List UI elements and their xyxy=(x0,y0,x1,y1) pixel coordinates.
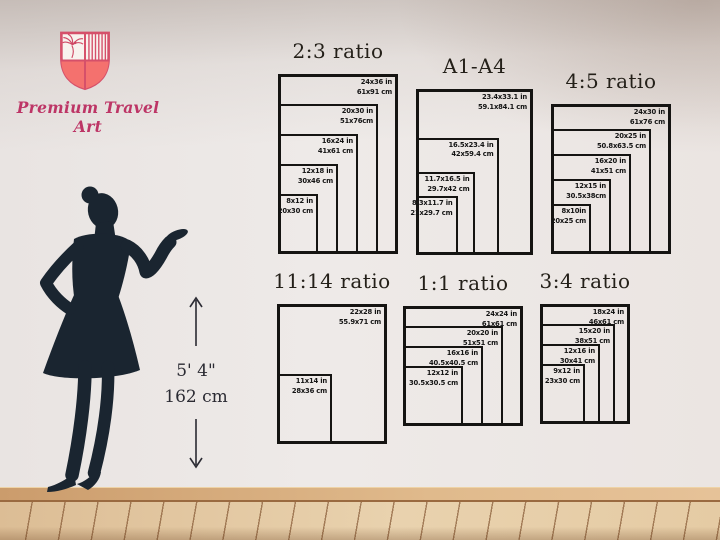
size-inches: 12x12 in xyxy=(409,369,458,379)
size-centimeters: 41x51 cm xyxy=(591,167,626,177)
size-label: 20x30 in51x76cm xyxy=(340,107,373,126)
size-label: 16x20 in41x51 cm xyxy=(591,157,626,176)
size-centimeters: 20x30 cm xyxy=(278,207,313,217)
size-rect: 11x14 in28x36 cm xyxy=(277,374,332,444)
height-metric: 162 cm xyxy=(156,384,236,410)
size-label: 22x28 in55.9x71 cm xyxy=(339,308,381,327)
size-inches: 11.7x16.5 in xyxy=(424,175,469,185)
size-centimeters: 55.9x71 cm xyxy=(339,318,381,328)
size-guide-scene: Premium Travel Art 5' 4" 162 cm xyxy=(0,0,720,540)
size-chart: 2:3 ratio24x36 in61x91 cm20x30 in51x76cm… xyxy=(278,74,398,254)
size-centimeters: 42x59.4 cm xyxy=(448,150,493,160)
size-inches: 12x15 in xyxy=(566,182,606,192)
size-centimeters: 30.5x38cm xyxy=(566,192,606,202)
size-inches: 8x10in xyxy=(551,207,586,217)
arrow-down-icon xyxy=(188,417,204,469)
size-inches: 16x16 in xyxy=(429,349,478,359)
size-label: 12x12 in30.5x30.5 cm xyxy=(409,369,458,388)
size-inches: 24x24 in xyxy=(482,310,517,320)
chart-title: 4:5 ratio xyxy=(565,69,656,93)
size-rect: 8x10in20x25 cm xyxy=(551,204,591,254)
size-inches: 16x20 in xyxy=(591,157,626,167)
size-centimeters: 23x30 cm xyxy=(545,377,580,387)
size-inches: 22x28 in xyxy=(339,308,381,318)
size-label: 8x12 in20x30 cm xyxy=(278,197,313,216)
size-chart: 11:14 ratio22x28 in55.9x71 cm11x14 in28x… xyxy=(277,304,387,444)
size-label: 23.4x33.1 in59.1x84.1 cm xyxy=(478,93,527,112)
size-inches: 11x14 in xyxy=(292,377,327,387)
size-label: 16x24 in41x61 cm xyxy=(318,137,353,156)
size-label: 11.7x16.5 in29.7x42 cm xyxy=(424,175,469,194)
size-centimeters: 20x25 cm xyxy=(551,217,586,227)
height-imperial: 5' 4" xyxy=(156,358,236,384)
size-label: 11x14 in28x36 cm xyxy=(292,377,327,396)
size-inches: 9x12 in xyxy=(545,367,580,377)
height-marker: 5' 4" 162 cm xyxy=(156,296,236,473)
size-centimeters: 28x36 cm xyxy=(292,387,327,397)
shield-crest-icon xyxy=(56,29,114,92)
size-chart: 3:4 ratio18x24 in46x61 cm15x20 in38x51 c… xyxy=(540,304,630,424)
size-label: 9x12 in23x30 cm xyxy=(545,367,580,386)
size-inches: 20x30 in xyxy=(340,107,373,117)
chart-title: 1:1 ratio xyxy=(417,271,508,295)
chart-title: A1-A4 xyxy=(443,54,507,78)
chart-title: 11:14 ratio xyxy=(273,269,390,293)
size-rect: 9x12 in23x30 cm xyxy=(540,364,585,424)
size-centimeters: 30x46 cm xyxy=(298,177,333,187)
size-centimeters: 21x29.7 cm xyxy=(410,209,452,219)
size-label: 24x36 in61x91 cm xyxy=(357,78,392,97)
size-label: 24x30 in61x76 cm xyxy=(630,108,665,127)
size-inches: 12x16 in xyxy=(560,347,595,357)
size-centimeters: 61x76 cm xyxy=(630,118,665,128)
size-inches: 24x36 in xyxy=(357,78,392,88)
size-inches: 12x18 in xyxy=(298,167,333,177)
size-label: 16.5x23.4 in42x59.4 cm xyxy=(448,141,493,160)
size-centimeters: 50.8x63.5 cm xyxy=(597,142,646,152)
size-centimeters: 30.5x30.5 cm xyxy=(409,379,458,389)
size-inches: 8x12 in xyxy=(278,197,313,207)
size-inches: 23.4x33.1 in xyxy=(478,93,527,103)
size-centimeters: 51x76cm xyxy=(340,117,373,127)
size-rect: 8.3x11.7 in21x29.7 cm xyxy=(416,196,458,255)
size-inches: 20x20 in xyxy=(463,329,498,339)
size-label: 8.3x11.7 in21x29.7 cm xyxy=(410,199,452,218)
size-inches: 20x25 in xyxy=(597,132,646,142)
size-centimeters: 29.7x42 cm xyxy=(424,185,469,195)
size-label: 12x15 in30.5x38cm xyxy=(566,182,606,201)
size-centimeters: 41x61 cm xyxy=(318,147,353,157)
chart-title: 2:3 ratio xyxy=(292,39,383,63)
brand-name: Premium Travel Art xyxy=(14,98,162,136)
chart-title: 3:4 ratio xyxy=(539,269,630,293)
size-centimeters: 61x91 cm xyxy=(357,88,392,98)
size-label: 12x18 in30x46 cm xyxy=(298,167,333,186)
size-inches: 24x30 in xyxy=(630,108,665,118)
size-inches: 16.5x23.4 in xyxy=(448,141,493,151)
size-chart: 1:1 ratio24x24 in61x61 cm20x20 in51x51 c… xyxy=(403,306,523,426)
size-inches: 15x20 in xyxy=(575,327,610,337)
size-inches: 18x24 in xyxy=(589,308,624,318)
size-chart: A1-A423.4x33.1 in59.1x84.1 cm16.5x23.4 i… xyxy=(416,89,533,255)
size-inches: 16x24 in xyxy=(318,137,353,147)
wood-floor xyxy=(0,502,720,540)
size-rect: 8x12 in20x30 cm xyxy=(278,194,318,254)
size-label: 8x10in20x25 cm xyxy=(551,207,586,226)
arrow-up-icon xyxy=(188,296,204,348)
size-chart: 4:5 ratio24x30 in61x76 cm20x25 in50.8x63… xyxy=(551,104,671,254)
size-rect: 12x12 in30.5x30.5 cm xyxy=(403,366,463,426)
size-label: 20x25 in50.8x63.5 cm xyxy=(597,132,646,151)
size-inches: 8.3x11.7 in xyxy=(410,199,452,209)
size-centimeters: 59.1x84.1 cm xyxy=(478,103,527,113)
